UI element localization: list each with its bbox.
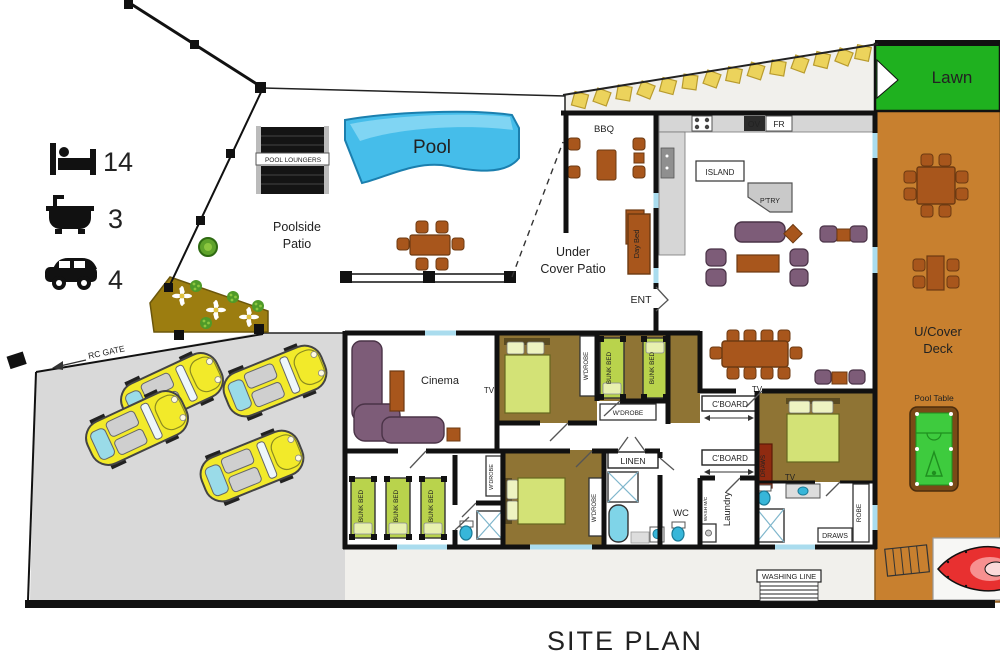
sofa — [735, 222, 785, 242]
shrub-icon — [252, 300, 264, 312]
side-table — [832, 372, 847, 384]
draws-label: DRAWS — [761, 455, 767, 477]
pool-table — [910, 407, 958, 491]
tv-label: TV — [484, 386, 495, 395]
armchair — [706, 269, 726, 286]
legend-beds-count: 14 — [103, 147, 133, 177]
bedroom2-bed — [504, 338, 550, 413]
wardrobe-label: W'DROBE — [592, 494, 598, 522]
media-table — [390, 371, 404, 411]
oven-label: OV — [748, 119, 761, 129]
toilet-icon — [460, 526, 472, 540]
bbq-label: BBQ — [594, 124, 614, 135]
tv-label: TV — [785, 473, 796, 482]
sink-icon — [661, 148, 674, 178]
poolside-patio-label: Poolside — [273, 220, 321, 234]
robe-label: ROBE — [856, 503, 863, 522]
day-bed-label: Day Bed — [632, 230, 641, 259]
bathtub-icon — [609, 505, 628, 542]
under-cover-patio-label2: Cover Patio — [540, 262, 605, 276]
fridge-label: FR — [773, 119, 784, 129]
pool-table-label: Pool Table — [914, 393, 954, 403]
armchair — [790, 269, 808, 286]
cinema-label: Cinema — [421, 375, 460, 387]
cupboard-label: C'BOARD — [712, 400, 748, 409]
kayak — [933, 538, 1000, 600]
ent-label: ENT — [631, 294, 653, 306]
toilet-icon — [672, 527, 684, 541]
bunk-bed-label: BUNK BED — [606, 351, 613, 384]
under-cover-patio-label: Under — [556, 245, 590, 259]
bunk-bed-label: BUNK BED — [358, 489, 365, 522]
wardrobe-label: W'DROBE — [613, 410, 644, 417]
shrub-icon — [190, 280, 202, 292]
deck-steps — [885, 545, 930, 576]
tv-label: TV — [752, 385, 763, 394]
washing-line-label: WASHING LINE — [762, 572, 816, 581]
page-title: SITE PLAN — [547, 626, 703, 656]
site-plan: 14 3 4 Lawn Pool POOL LOUNGERS Poolside … — [0, 0, 1000, 666]
laundry-label: Laundry — [722, 492, 733, 527]
bath-icon — [46, 195, 94, 234]
shrub-icon — [200, 317, 212, 329]
cupboard-label: C'BOARD — [712, 454, 748, 463]
deck-label: U/Cover — [914, 324, 962, 339]
draws-label: DRAWS — [822, 533, 848, 540]
deck-label2: Deck — [923, 341, 953, 356]
basin-icon — [798, 487, 808, 495]
armchair — [815, 370, 831, 384]
bunk-bed-label: BUNK BED — [393, 489, 400, 522]
master-bed — [786, 398, 840, 462]
bottom-boundary — [25, 600, 995, 608]
legend-baths-count: 3 — [108, 204, 123, 234]
armchair — [706, 249, 726, 266]
wardrobe-label: W'DROBE — [489, 464, 495, 490]
stove-icon — [692, 116, 712, 131]
linen-label: LINEN — [620, 456, 645, 466]
side-table — [837, 229, 850, 241]
legend: 14 3 4 — [45, 143, 133, 295]
coffee-table — [737, 255, 779, 272]
armchair — [790, 249, 808, 266]
armchair — [849, 370, 865, 384]
pool-label: Pool — [413, 137, 451, 158]
armchair — [820, 226, 837, 242]
wc-room — [672, 522, 685, 541]
car-icon — [45, 258, 97, 290]
dining-table — [722, 341, 788, 367]
shrub-icon — [227, 291, 239, 303]
poolside-patio-label2: Patio — [283, 237, 312, 251]
bunk-bed-label: BUNK BED — [428, 489, 435, 522]
laundry-room — [701, 524, 716, 542]
bunk-bed-label: BUNK BED — [649, 351, 656, 384]
armchair — [850, 226, 867, 242]
lawn-top-border — [875, 40, 1000, 46]
bedroom3-bed — [504, 478, 565, 524]
pantry-label: P'TRY — [760, 198, 780, 205]
toilet-icon — [758, 491, 770, 505]
lawn-label: Lawn — [932, 68, 973, 87]
wash-mc-label: WASH M/C — [703, 496, 709, 521]
hall-floor — [668, 333, 700, 423]
wc-label: WC — [673, 508, 689, 519]
pool-loungers-label: POOL LOUNGERS — [265, 157, 322, 164]
legend-cars-count: 4 — [108, 265, 123, 295]
side-table — [447, 428, 460, 441]
wardrobe-label: W'DROBE — [584, 352, 590, 380]
bath-mat — [631, 532, 649, 543]
island-label: ISLAND — [706, 168, 735, 177]
bed-icon — [50, 143, 96, 175]
